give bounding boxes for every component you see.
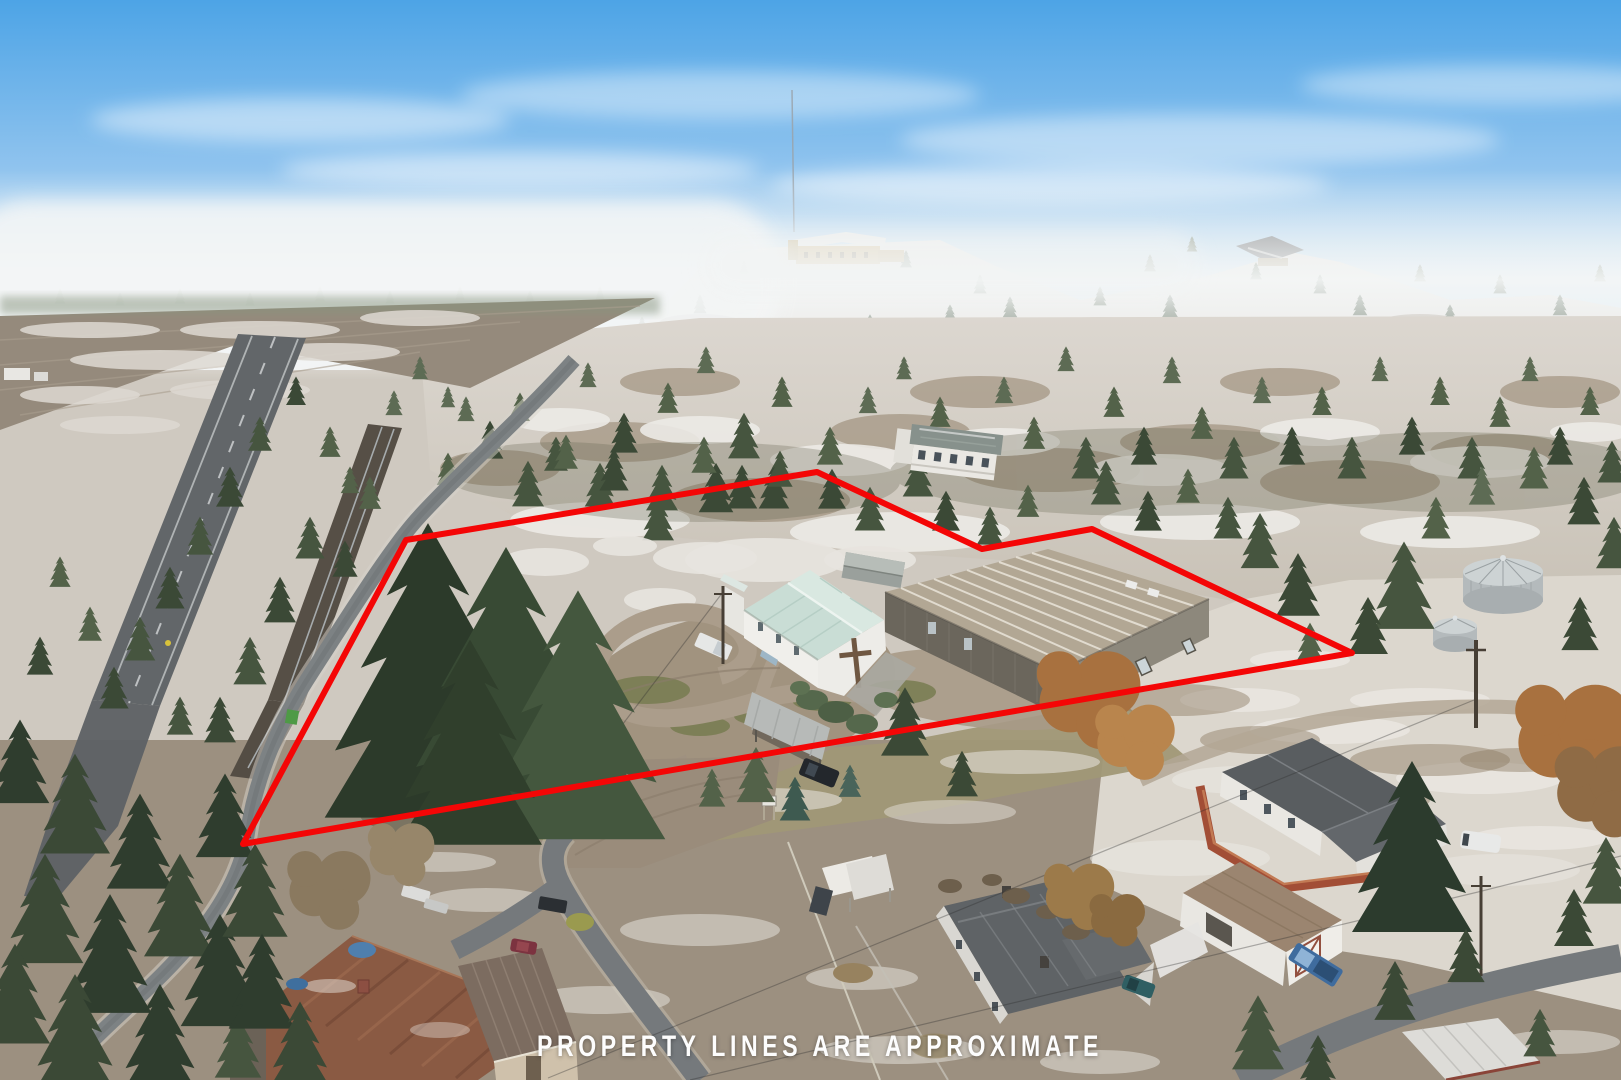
farm-building-small (34, 372, 48, 381)
conifer-tree-icon (167, 697, 194, 735)
conifer-tree-icon (264, 577, 296, 623)
grain-silo-large (1463, 555, 1543, 614)
conifer-tree-icon (49, 557, 70, 587)
olive-bush (566, 913, 594, 931)
ground-patch (1360, 516, 1540, 548)
blue-tarp (348, 942, 376, 958)
conifer-tree-icon (319, 427, 340, 457)
conifer-tree-icon (295, 517, 324, 559)
ground-patch (593, 536, 657, 556)
ground-patch (910, 376, 1050, 408)
conifer-tree-icon (233, 637, 266, 685)
conifer-tree-icon (27, 637, 54, 675)
ground-patch (620, 368, 740, 396)
chimney (358, 980, 369, 993)
ground-patch (620, 914, 780, 946)
conifer-tree-icon (204, 697, 236, 743)
grain-silo-small (1433, 616, 1477, 653)
conifer-tree-icon (78, 607, 102, 641)
green-object (285, 709, 299, 725)
aerial-property-photo: PROPERTY LINES ARE APPROXIMATE (0, 0, 1621, 1080)
conifer-tree-icon (385, 390, 402, 415)
garden-bed (833, 963, 873, 983)
ground-patch (685, 538, 845, 582)
road-sign-dot (165, 640, 171, 646)
ground-patch (884, 800, 1016, 824)
ground-patch (1500, 376, 1620, 408)
farm-building (4, 368, 30, 380)
caption-text: PROPERTY LINES ARE APPROXIMATE (537, 1030, 1103, 1063)
kiddie-pool (286, 978, 308, 990)
